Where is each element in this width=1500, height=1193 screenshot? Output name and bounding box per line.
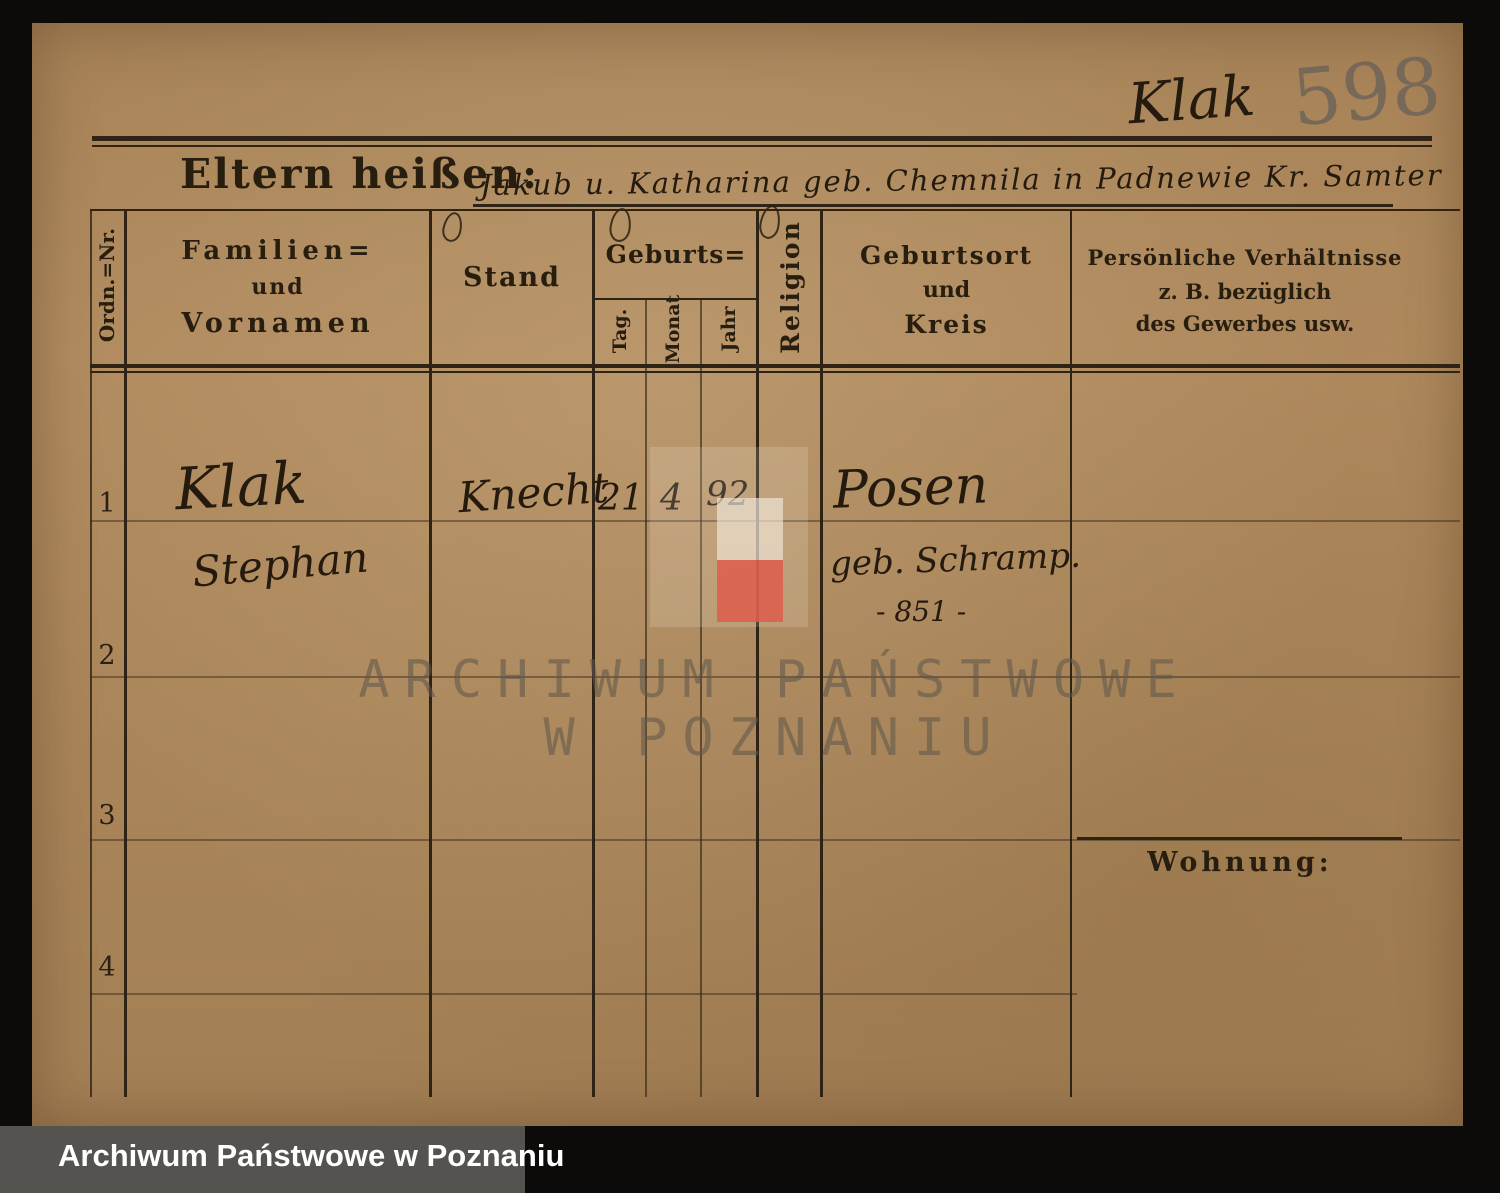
- table-top-border: [90, 209, 1460, 211]
- column-header-vornamen: Vornamen: [127, 308, 429, 339]
- handwritten-surname-top: Klak: [1126, 64, 1257, 138]
- column-header-geburtsort-und: und: [823, 277, 1070, 303]
- parents-entry-underline: [473, 204, 1393, 207]
- row-line-4: [90, 993, 1077, 995]
- column-header-familien: Familien=: [127, 236, 429, 266]
- header-bottom-rule-thick: [90, 364, 1460, 368]
- column-header-tag: Tag.: [603, 286, 637, 376]
- column-header-stand: Stand: [432, 262, 592, 293]
- column-header-monat: Monat: [656, 284, 690, 374]
- scanned-document: Klak 598 Eltern heißen: Jakub u. Kathari…: [0, 0, 1500, 1193]
- column-header-gewerbes: des Gewerbes usw.: [1075, 311, 1415, 336]
- column-header-ordn-nr: Ordn.=Nr.: [87, 230, 127, 340]
- row-number-4: 4: [89, 952, 125, 983]
- top-rule-thick: [92, 136, 1432, 141]
- entry-tag: 21: [598, 478, 644, 519]
- watermark-line-2: W POZNANIU: [90, 708, 1460, 768]
- watermark-line-1: ARCHIWUM PAŃSTWOWE: [90, 650, 1460, 710]
- column-header-bezueglich: z. B. bezüglich: [1075, 279, 1415, 304]
- wohnung-top-rule: [1077, 837, 1402, 840]
- column-header-persoenliche: Persönliche Verhältnisse: [1075, 245, 1415, 270]
- entry-geburtsort: Posen: [832, 455, 989, 520]
- flag-red-square: [717, 560, 783, 622]
- top-rule-thin: [92, 145, 1432, 147]
- pencil-number: 598: [1288, 42, 1444, 145]
- flag-white-square: [717, 498, 783, 560]
- column-header-und: und: [127, 274, 429, 300]
- column-header-geburts: Geburts=: [595, 240, 757, 269]
- column-header-kreis: Kreis: [823, 310, 1070, 339]
- column-header-jahr: Jahr: [712, 284, 746, 374]
- column-header-religion: Religion: [770, 221, 810, 353]
- wohnung-label: Wohnung:: [1090, 847, 1390, 878]
- entry-surname: Klak: [173, 449, 308, 524]
- entry-stand: Knecht: [456, 463, 610, 522]
- row-number-1: 1: [89, 488, 125, 519]
- footer-archive-label: Archiwum Państwowe w Poznaniu: [58, 1138, 564, 1174]
- header-bottom-rule-thin: [90, 371, 1460, 373]
- row-number-3: 3: [89, 800, 125, 831]
- entry-geburtsort-line3: - 851 -: [876, 595, 966, 628]
- column-header-geburtsort: Geburtsort: [823, 241, 1070, 270]
